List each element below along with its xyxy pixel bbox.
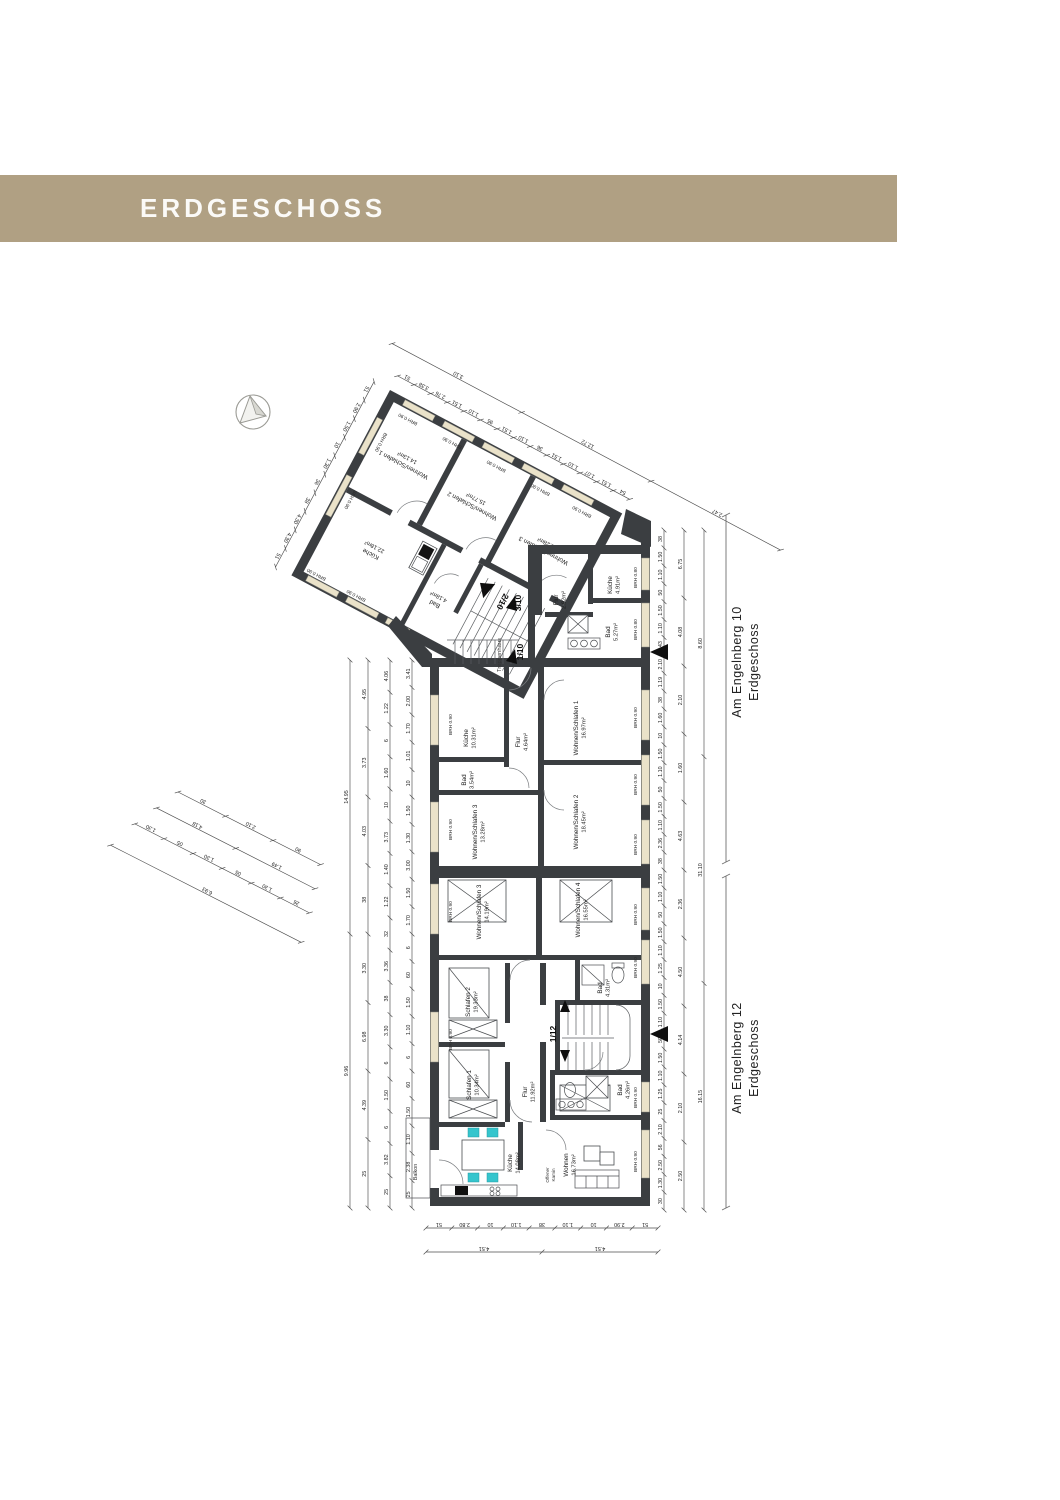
svg-text:4.95: 4.95 [362, 689, 368, 700]
svg-text:51: 51 [404, 373, 412, 381]
room-label-110-ws1: Wohnen/Schlafen 116.97m² [573, 700, 588, 755]
svg-text:19.33m²: 19.33m² [474, 991, 480, 1012]
svg-text:Bad: Bad [597, 982, 604, 994]
svg-text:1.10: 1.10 [658, 820, 664, 831]
svg-text:1.60: 1.60 [658, 713, 664, 724]
svg-text:13.28m²: 13.28m² [481, 821, 487, 842]
svg-text:1.50: 1.50 [658, 552, 664, 563]
svg-text:1.22: 1.22 [384, 703, 390, 714]
svg-text:2.92m²: 2.92m² [562, 591, 568, 609]
svg-text:2.80: 2.80 [459, 1221, 470, 1227]
svg-text:6: 6 [406, 946, 412, 949]
svg-text:6: 6 [384, 1126, 390, 1129]
svg-text:Wohnen: Wohnen [563, 1153, 570, 1177]
svg-text:2.10: 2.10 [658, 1124, 664, 1135]
svg-text:1.50: 1.50 [658, 748, 664, 759]
svg-text:1.60: 1.60 [384, 768, 390, 779]
svg-text:2.38: 2.38 [406, 1162, 412, 1173]
svg-text:1.50: 1.50 [658, 999, 664, 1010]
svg-text:30: 30 [658, 1198, 664, 1204]
svg-text:Wohnen/Schlafen 4: Wohnen/Schlafen 4 [575, 882, 582, 937]
kitchen-112-furniture [441, 1128, 517, 1196]
svg-text:16.73m²: 16.73m² [572, 1154, 578, 1175]
svg-text:60: 60 [406, 1082, 412, 1088]
svg-text:16.97m²: 16.97m² [582, 717, 588, 738]
svg-text:3.82: 3.82 [384, 1154, 390, 1165]
svg-text:2.10: 2.10 [245, 820, 257, 830]
svg-text:Schlafen 1: Schlafen 1 [466, 1070, 473, 1100]
room-label-310-bad: Bad5.27m² [605, 623, 620, 641]
svg-text:Offener: Offener [545, 1167, 550, 1183]
svg-text:16.15: 16.15 [698, 1090, 704, 1104]
svg-text:51: 51 [362, 385, 370, 393]
dim-chain-left-2: 253.8261.5063.30383.36321.221.403.73101.… [384, 658, 393, 1211]
svg-text:1.30: 1.30 [658, 1178, 664, 1189]
room-label-112-bad-u: Bad4.26m² [617, 1081, 632, 1099]
svg-text:1.25: 1.25 [658, 963, 664, 974]
svg-text:38: 38 [384, 995, 390, 1001]
svg-text:6: 6 [384, 1061, 390, 1064]
svg-text:2.47: 2.47 [712, 507, 724, 517]
svg-text:4.08: 4.08 [678, 627, 684, 638]
svg-text:1.49: 1.49 [271, 860, 283, 870]
svg-text:26: 26 [293, 898, 301, 906]
svg-text:4.91m²: 4.91m² [616, 576, 622, 594]
svg-text:1.30: 1.30 [261, 882, 273, 892]
dim-chain-bottom-1: 512.80101.10381.10102.9051 [424, 1221, 661, 1230]
svg-text:14.08m²: 14.08m² [516, 1152, 522, 1173]
living-112-furniture [575, 1146, 619, 1188]
svg-text:2.10: 2.10 [658, 659, 664, 670]
brh-label: BRH 0.90 [633, 774, 639, 795]
svg-text:51: 51 [436, 1221, 442, 1227]
svg-text:38: 38 [539, 1221, 545, 1227]
svg-text:1.30: 1.30 [145, 823, 157, 833]
svg-text:54: 54 [619, 488, 627, 496]
svg-text:Bad: Bad [617, 1084, 624, 1096]
brh-label: BRH 0.80 [633, 619, 639, 640]
svg-text:2.10: 2.10 [678, 1103, 684, 1114]
svg-text:1.10: 1.10 [518, 434, 530, 444]
svg-text:51: 51 [642, 1221, 648, 1227]
svg-text:Flur: Flur [522, 1087, 529, 1098]
svg-text:1.50: 1.50 [658, 1053, 664, 1064]
svg-text:30: 30 [199, 797, 207, 805]
svg-text:4.51: 4.51 [479, 1245, 490, 1251]
brh-label: BRH 0.90 [633, 1151, 639, 1172]
svg-text:3.00: 3.00 [406, 860, 412, 871]
svg-text:1.51: 1.51 [551, 451, 563, 461]
svg-text:56: 56 [658, 1144, 664, 1150]
room-label-112-kueche: Küche14.08m² [507, 1152, 522, 1173]
svg-text:25: 25 [658, 1109, 664, 1115]
svg-text:1.50: 1.50 [341, 420, 351, 432]
svg-text:6.75: 6.75 [678, 559, 684, 570]
wall-west-310 [528, 545, 535, 667]
svg-text:1.30: 1.30 [321, 457, 331, 469]
svg-text:16.55m²: 16.55m² [584, 899, 590, 920]
svg-text:Wohnen/Schlafen 1: Wohnen/Schlafen 1 [573, 700, 580, 755]
svg-text:6: 6 [406, 1056, 412, 1059]
svg-text:4.06: 4.06 [384, 671, 390, 682]
svg-text:10: 10 [332, 441, 340, 449]
dim-chain-right-3: 16.1531.108.60 [698, 528, 707, 1213]
svg-text:Wohnen/Schlafen 2: Wohnen/Schlafen 2 [573, 794, 580, 849]
svg-text:31.10: 31.10 [698, 863, 704, 877]
svg-text:4.30: 4.30 [292, 513, 302, 525]
svg-text:Flur: Flur [515, 737, 522, 748]
svg-text:38: 38 [362, 897, 368, 903]
svg-text:1.51: 1.51 [501, 425, 513, 435]
room-label-110-bad: Bad3.54m² [461, 771, 476, 789]
svg-text:36: 36 [312, 478, 320, 486]
balcony-door-opening [430, 1150, 439, 1188]
svg-text:10.34m²: 10.34m² [475, 1074, 481, 1095]
brh-label: BRH 0.90 [448, 714, 454, 735]
room-label-110-flur: Flur4.64m² [515, 733, 530, 751]
svg-text:1.07: 1.07 [584, 469, 596, 479]
svg-text:1.10: 1.10 [563, 1221, 574, 1227]
svg-text:90: 90 [294, 845, 302, 853]
svg-text:95: 95 [486, 417, 494, 425]
svg-text:6: 6 [384, 739, 390, 742]
wall-north-310 [528, 545, 650, 554]
street-label-10-line1: Am Engelnberg 10 [730, 606, 744, 718]
brh-label: BRH 0.90 [633, 904, 639, 925]
svg-text:Bad: Bad [605, 626, 612, 638]
fireplace-label: Offener Kamin [545, 1167, 556, 1183]
svg-text:25: 25 [384, 1189, 390, 1195]
svg-text:3.10: 3.10 [453, 369, 465, 379]
svg-text:1.10: 1.10 [658, 892, 664, 903]
svg-text:Schlafen 2: Schlafen 2 [465, 987, 472, 1017]
svg-text:14.19m²: 14.19m² [485, 901, 491, 922]
svg-text:Kamin: Kamin [551, 1168, 556, 1181]
dim-chain-left-1: 252.381.101.506061.101.506061.701.503.00… [406, 658, 415, 1211]
svg-text:10: 10 [658, 983, 664, 989]
svg-text:2.50: 2.50 [678, 1171, 684, 1182]
wall-south [430, 1197, 650, 1206]
dim-chain-small-3: 1.30051.30051.3026 [132, 817, 315, 916]
brh-label: BRH 0.90 [448, 1029, 454, 1050]
svg-text:10: 10 [384, 802, 390, 808]
svg-text:Küche: Küche [463, 729, 470, 747]
svg-text:1.10: 1.10 [406, 1134, 412, 1145]
svg-text:4.39: 4.39 [362, 1100, 368, 1111]
svg-text:1.10: 1.10 [468, 407, 480, 417]
treppenhaus-label: Treppenhaus [497, 638, 503, 672]
svg-text:4.63: 4.63 [678, 831, 684, 842]
svg-text:2.36: 2.36 [678, 899, 684, 910]
svg-text:1.50: 1.50 [658, 605, 664, 616]
floor-plan: 252.381.101.506061.101.506061.701.503.00… [0, 0, 1060, 1500]
svg-text:3.73: 3.73 [362, 758, 368, 769]
stairwell-1-12 [562, 1005, 630, 1070]
svg-text:11.92m²: 11.92m² [531, 1082, 537, 1103]
svg-text:4.30: 4.30 [282, 531, 292, 543]
svg-text:8.60: 8.60 [698, 638, 704, 649]
svg-text:1.10: 1.10 [511, 1221, 522, 1227]
svg-text:Wohnen/Schlafen 3: Wohnen/Schlafen 3 [472, 804, 479, 859]
svg-text:1.10: 1.10 [658, 945, 664, 956]
dim-chain-left-3: 254.396.983.30384.033.734.95 [362, 658, 371, 1211]
street-annotations: Am Engelnberg 10 Erdgeschoss Am Engelnbe… [722, 513, 761, 1210]
svg-text:50: 50 [658, 590, 664, 596]
svg-text:10.31m²: 10.31m² [472, 727, 478, 748]
room-label-112-flur: Flur11.92m² [522, 1082, 537, 1103]
brh-label: BRH 0.80 [633, 567, 639, 588]
svg-text:9.96: 9.96 [344, 1066, 350, 1077]
brh-label: BRH 0.90 [448, 901, 454, 922]
svg-text:Wohnen/Schlafen 3: Wohnen/Schlafen 3 [476, 884, 483, 939]
balkon-label: Balkon [413, 1164, 419, 1180]
svg-text:1.50: 1.50 [406, 997, 412, 1008]
svg-text:6.98: 6.98 [362, 1032, 368, 1043]
svg-text:4.51: 4.51 [595, 1245, 606, 1251]
svg-text:4.18: 4.18 [192, 820, 204, 830]
svg-text:1.10: 1.10 [406, 1025, 412, 1036]
bath-310-fixtures [568, 615, 600, 649]
svg-text:60: 60 [406, 972, 412, 978]
svg-text:4.03: 4.03 [362, 826, 368, 837]
stair-arrow-down [560, 1050, 570, 1062]
room-label-112-wohnen: Wohnen16.73m² [563, 1153, 578, 1177]
brh-label: BRH 0.90 [448, 819, 454, 840]
svg-text:1.10: 1.10 [567, 460, 579, 470]
wing-north: 513.382.761.511.10951.511.10361.511.101.… [268, 335, 785, 776]
svg-text:6.93: 6.93 [202, 885, 214, 895]
svg-text:1.19: 1.19 [658, 677, 664, 688]
svg-text:1.25: 1.25 [658, 1088, 664, 1099]
svg-text:25: 25 [362, 1171, 368, 1177]
svg-text:2.36: 2.36 [658, 838, 664, 849]
svg-text:1.50: 1.50 [658, 802, 664, 813]
svg-text:05: 05 [234, 868, 242, 876]
svg-text:2.90: 2.90 [351, 402, 361, 414]
street-label-12-line1: Am Engelnberg 12 [730, 1002, 744, 1114]
svg-text:1.10: 1.10 [658, 569, 664, 580]
svg-text:38: 38 [658, 697, 664, 703]
svg-text:1.50: 1.50 [406, 1107, 412, 1118]
svg-text:1.10: 1.10 [658, 1071, 664, 1082]
room-label-110-ws3: Wohnen/Schlafen 313.28m² [472, 804, 487, 859]
apartment-marker-1-12: 1/12 [548, 1025, 558, 1042]
svg-text:1.50: 1.50 [658, 874, 664, 885]
svg-text:4.14: 4.14 [678, 1035, 684, 1046]
room-label-110-kueche: Küche10.31m² [463, 727, 478, 748]
svg-text:Flur: Flur [553, 595, 560, 606]
svg-text:50: 50 [658, 786, 664, 792]
svg-text:3.36: 3.36 [384, 961, 390, 972]
svg-text:38: 38 [303, 496, 311, 504]
svg-text:4.26m²: 4.26m² [626, 1081, 632, 1099]
svg-text:1.30: 1.30 [203, 853, 215, 863]
svg-text:32: 32 [384, 931, 390, 937]
svg-text:51: 51 [273, 552, 281, 560]
room-label-310-kueche: Küche4.91m² [607, 576, 622, 594]
svg-text:1.50: 1.50 [658, 927, 664, 938]
svg-text:2.00: 2.00 [406, 696, 412, 707]
svg-text:3.30: 3.30 [384, 1025, 390, 1036]
svg-text:1.60: 1.60 [678, 763, 684, 774]
apartment-marker-1-10: 1/10 [515, 643, 525, 660]
dim-chain-right-1: 301.302.50562.10251.251.101.50501.101.50… [658, 528, 667, 1213]
svg-text:1.10: 1.10 [658, 623, 664, 634]
svg-text:3.30: 3.30 [362, 963, 368, 974]
svg-text:4.50: 4.50 [678, 967, 684, 978]
svg-text:2.76: 2.76 [435, 389, 447, 399]
svg-text:12.72: 12.72 [581, 438, 596, 450]
compass-icon [236, 395, 270, 429]
dim-chains-diagonal: 302.1090 4.181.49 1.30051.30051.3026 6.9… [107, 769, 342, 946]
svg-text:1.22: 1.22 [384, 897, 390, 908]
brh-label: BRH 0.90 [633, 1087, 639, 1108]
svg-text:10: 10 [406, 780, 412, 786]
svg-text:14.95: 14.95 [344, 790, 350, 804]
svg-text:3.41: 3.41 [406, 668, 412, 679]
bath-o-112-fixtures [582, 963, 624, 985]
street-label-10-line2: Erdgeschoss [747, 623, 761, 701]
svg-text:2.10: 2.10 [678, 695, 684, 706]
brh-label: BRH 0.90 [633, 957, 639, 978]
svg-text:1.30: 1.30 [406, 833, 412, 844]
svg-text:5.27m²: 5.27m² [614, 623, 620, 641]
svg-text:36: 36 [536, 443, 544, 451]
svg-text:38: 38 [658, 858, 664, 864]
svg-text:Küche: Küche [607, 576, 614, 594]
dim-chain-small-2: 4.181.49 [153, 801, 320, 892]
dim-chain-left-4: 9.9614.95 [344, 658, 353, 1211]
brh-label: BRH 0.90 [633, 834, 639, 855]
svg-text:4.64m²: 4.64m² [524, 733, 530, 751]
svg-text:18.45m²: 18.45m² [582, 811, 588, 832]
svg-text:25: 25 [406, 1191, 412, 1197]
dim-chain-bottom-2: 4.514.51 [424, 1245, 661, 1254]
svg-text:50: 50 [658, 912, 664, 918]
svg-text:Küche: Küche [507, 1154, 514, 1172]
svg-text:3.38: 3.38 [418, 381, 430, 391]
svg-text:Bad: Bad [461, 774, 468, 786]
svg-text:1.01: 1.01 [406, 751, 412, 762]
svg-text:3.54m²: 3.54m² [470, 771, 476, 789]
brh-label: BRH 0.90 [633, 707, 639, 728]
svg-text:1.40: 1.40 [384, 864, 390, 875]
svg-text:1.10: 1.10 [658, 1017, 664, 1027]
street-label-12-line2: Erdgeschoss [747, 1019, 761, 1097]
svg-text:1.50: 1.50 [406, 888, 412, 899]
svg-text:38: 38 [658, 536, 664, 542]
svg-text:1.50: 1.50 [406, 805, 412, 816]
svg-text:1.10: 1.10 [658, 766, 664, 777]
svg-text:10: 10 [658, 733, 664, 739]
svg-text:1.51: 1.51 [601, 478, 613, 488]
svg-text:05: 05 [176, 839, 184, 847]
svg-text:4.31m²: 4.31m² [606, 979, 612, 997]
building-divider-wall [430, 866, 650, 878]
svg-text:3.73: 3.73 [384, 832, 390, 843]
svg-text:1.70: 1.70 [406, 915, 412, 926]
svg-text:2.90: 2.90 [614, 1221, 625, 1227]
svg-text:1.70: 1.70 [406, 723, 412, 734]
svg-text:1.50: 1.50 [384, 1090, 390, 1101]
dim-chain-right-2: 2.502.104.144.502.364.631.602.104.086.75 [678, 528, 687, 1213]
svg-text:1.51: 1.51 [451, 398, 463, 408]
svg-text:2.50: 2.50 [658, 1160, 664, 1171]
room-label-110-ws2: Wohnen/Schlafen 218.45m² [573, 794, 588, 849]
svg-text:10: 10 [487, 1221, 493, 1227]
balcony: Balkon [406, 1118, 430, 1198]
svg-text:10: 10 [591, 1221, 597, 1227]
apartment-marker-3-10: 3/10 [513, 594, 523, 611]
